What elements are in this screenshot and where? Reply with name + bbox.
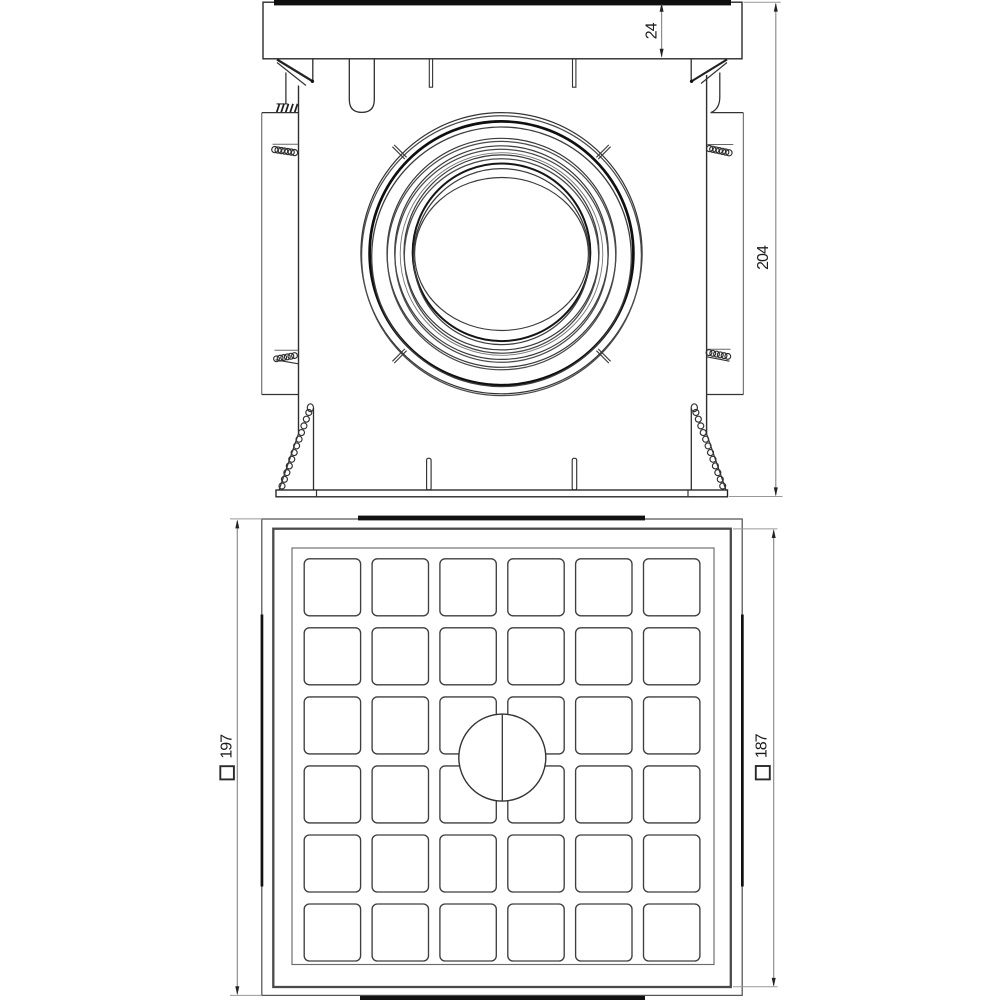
svg-text:204: 204 [755,245,772,270]
svg-text:24: 24 [643,22,660,39]
svg-text:187: 187 [754,733,771,758]
svg-text:197: 197 [219,734,236,759]
